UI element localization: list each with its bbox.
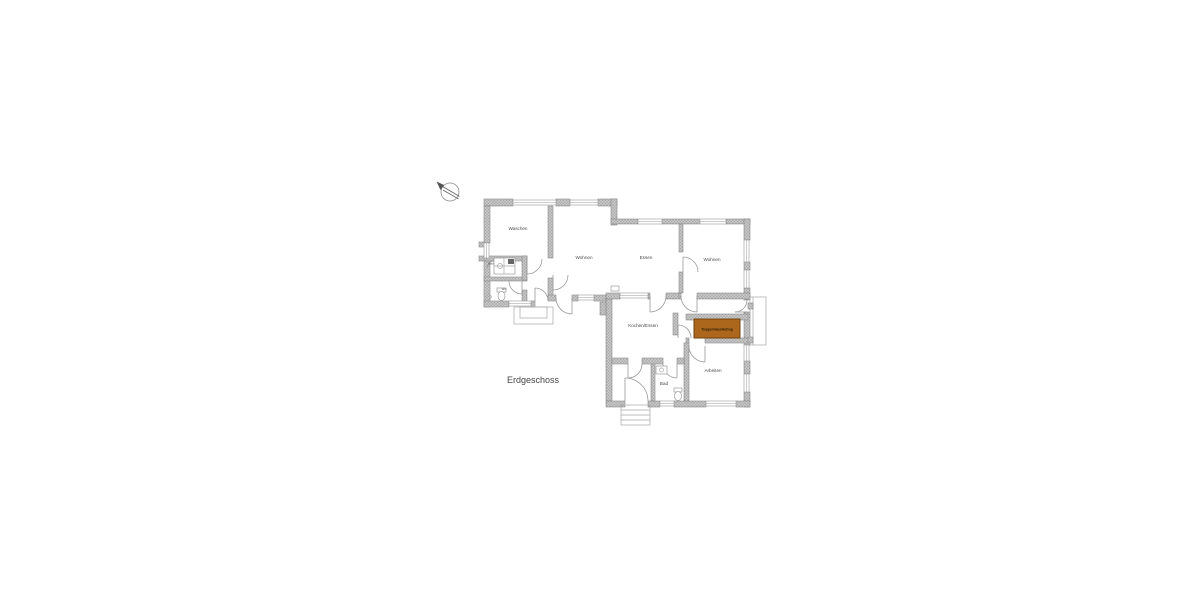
highlight-label: Treppenhaus/Aufzug	[701, 328, 733, 332]
window	[509, 301, 531, 306]
door	[625, 378, 648, 401]
window	[744, 270, 749, 288]
shower-unit	[494, 258, 515, 274]
window	[706, 401, 736, 406]
floor-title: Erdgeschoss	[507, 375, 560, 385]
radiator	[611, 286, 619, 291]
window	[744, 374, 749, 392]
room-label-bad-lower: Bad	[660, 381, 669, 386]
window	[660, 401, 674, 406]
door	[628, 364, 642, 378]
window	[513, 200, 556, 205]
door	[735, 300, 747, 312]
door	[556, 298, 572, 314]
room-label-waschen: Waschen	[509, 226, 528, 231]
door	[527, 259, 542, 274]
room-label-wohnen-right: Wohnen	[703, 257, 720, 262]
door	[509, 281, 522, 294]
door	[553, 275, 568, 290]
room-label-arbeiten: Arbeiten	[704, 368, 722, 373]
door	[650, 296, 666, 312]
room-label-essen: Essen	[640, 255, 653, 260]
sink	[656, 366, 667, 374]
porch	[514, 307, 553, 324]
terrace	[748, 297, 766, 345]
window	[484, 243, 489, 258]
window	[638, 219, 662, 224]
window	[578, 295, 594, 300]
entrance-stairs	[621, 405, 650, 425]
window	[620, 293, 648, 298]
door	[681, 296, 697, 312]
north-arrow-icon	[437, 182, 460, 202]
room-label-bad-upper: Bad	[489, 262, 494, 266]
door	[683, 257, 698, 272]
door	[678, 325, 691, 338]
floor-plan: Treppenhaus/Aufzug Waschen Wohnen Essen …	[0, 0, 1200, 600]
door	[689, 346, 705, 362]
window	[744, 240, 749, 262]
window	[744, 345, 749, 361]
highlight-box[interactable]: Treppenhaus/Aufzug	[694, 319, 740, 338]
toilet	[674, 388, 682, 401]
window	[570, 200, 598, 205]
door	[535, 288, 548, 301]
room-label-kochen-essen: Kochen/Essen	[628, 323, 658, 328]
room-label-wohnen-left: Wohnen	[575, 255, 592, 260]
room-label-wc: WC	[502, 287, 507, 291]
window	[700, 219, 726, 224]
